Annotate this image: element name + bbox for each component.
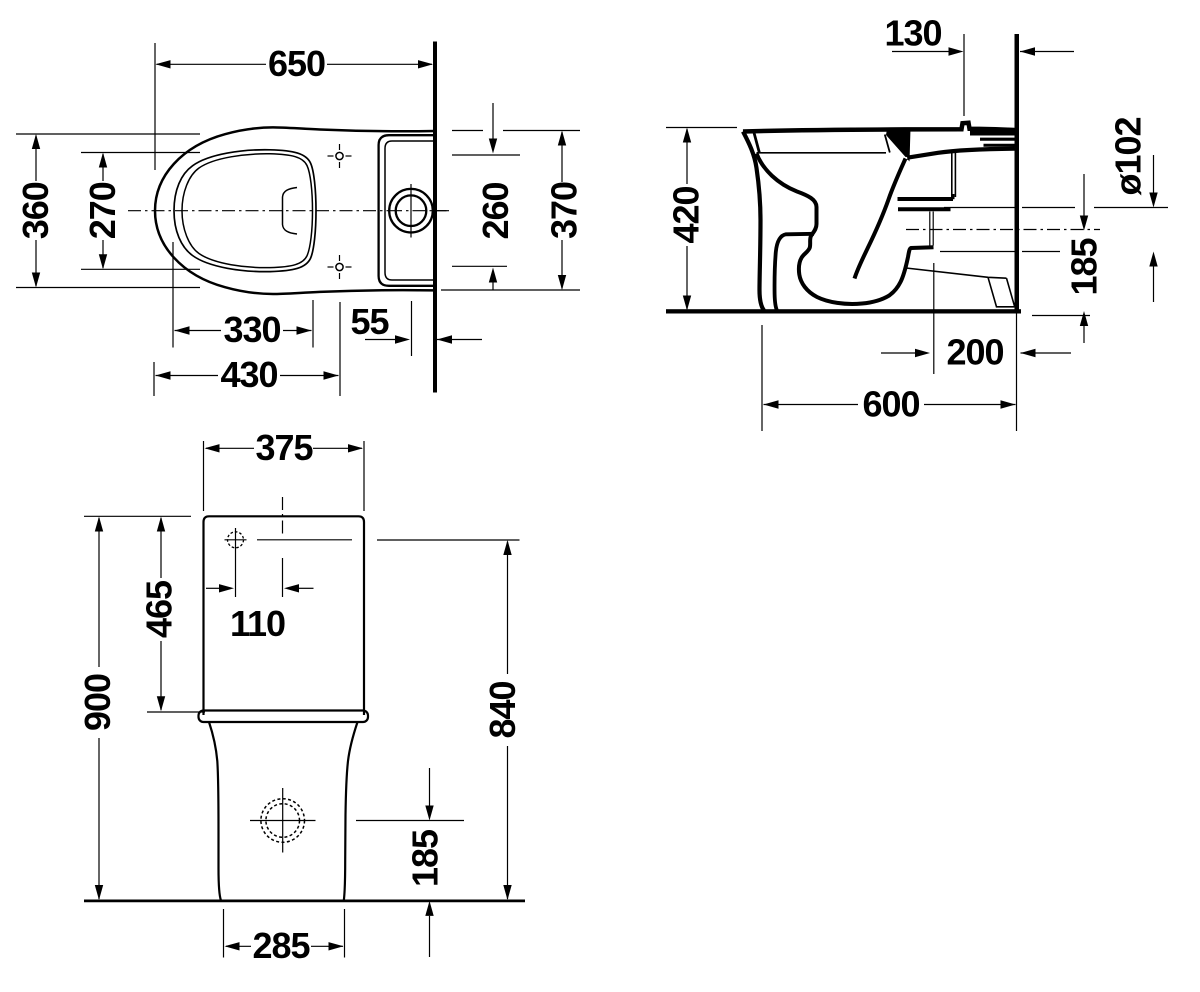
svg-text:200: 200 (946, 331, 1003, 372)
svg-text:ø102: ø102 (1107, 117, 1148, 195)
svg-text:55: 55 (350, 301, 389, 342)
svg-text:110: 110 (230, 603, 285, 644)
svg-text:465: 465 (138, 580, 179, 638)
svg-text:185: 185 (404, 829, 445, 887)
svg-text:375: 375 (255, 427, 313, 468)
svg-text:650: 650 (268, 43, 325, 84)
svg-text:430: 430 (220, 354, 277, 395)
svg-text:370: 370 (543, 182, 584, 239)
svg-text:600: 600 (862, 383, 919, 424)
svg-text:840: 840 (482, 681, 523, 738)
svg-text:260: 260 (475, 182, 516, 239)
svg-text:330: 330 (223, 309, 280, 350)
svg-text:270: 270 (82, 182, 123, 239)
svg-text:360: 360 (15, 182, 56, 239)
svg-text:900: 900 (77, 674, 118, 731)
svg-text:420: 420 (665, 186, 706, 243)
svg-text:185: 185 (1063, 237, 1104, 295)
svg-text:130: 130 (884, 12, 941, 53)
svg-text:285: 285 (252, 925, 310, 966)
